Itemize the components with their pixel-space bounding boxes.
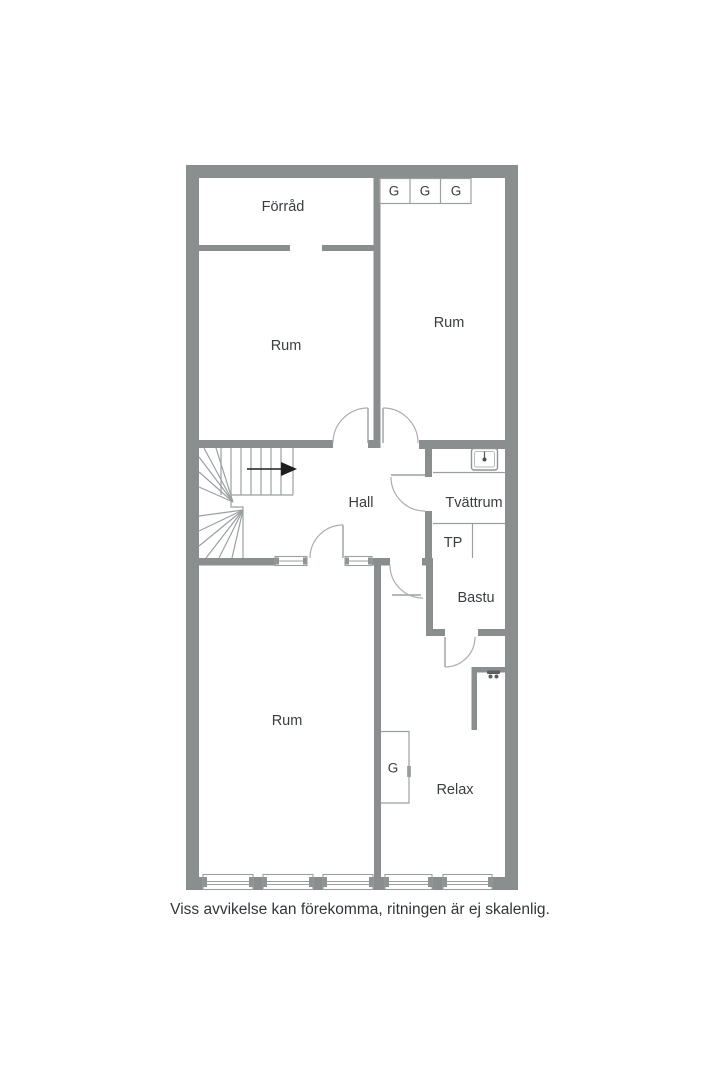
wardrobe-label-g-relax: G <box>388 761 399 775</box>
interior-window-icon <box>275 557 307 566</box>
sink-icon <box>433 449 505 473</box>
door-relax-corridor <box>390 565 423 598</box>
room-label-hall: Hall <box>349 496 374 511</box>
room-label-relax: Relax <box>436 783 473 798</box>
window-icon <box>203 875 253 890</box>
shower-mixer-icon <box>487 671 500 679</box>
disclaimer-caption: Viss avvikelse kan förekomma, ritningen … <box>170 901 550 919</box>
stairs-direction-arrow-icon <box>247 462 297 476</box>
room-label-bastu: Bastu <box>457 591 494 606</box>
wardrobe-label-g1: G <box>389 184 400 198</box>
label-tp: TP <box>444 536 463 551</box>
room-label-rum-bottom: Rum <box>272 714 303 729</box>
room-label-rum-top-left: Rum <box>271 339 302 354</box>
interior-walls <box>199 178 505 877</box>
winder-staircase-icon <box>199 448 297 558</box>
window-icon <box>443 875 492 890</box>
interior-window-icon <box>345 557 372 566</box>
room-label-rum-top-right: Rum <box>434 316 465 331</box>
door-bastu <box>445 637 475 667</box>
door-rum-bottom <box>310 525 343 558</box>
window-icon <box>323 875 373 890</box>
wardrobe-label-g3: G <box>451 184 462 198</box>
interior-windows <box>275 557 372 566</box>
window-icon <box>385 875 432 890</box>
door-rum-top-left <box>333 408 368 443</box>
room-label-forrad: Förråd <box>262 200 305 215</box>
door-rum-top-right <box>383 408 418 443</box>
room-label-tvattrum: Tvättrum <box>445 496 502 511</box>
door-tvattrum <box>391 475 425 511</box>
wardrobe-label-g2: G <box>420 184 431 198</box>
floor-plan-page: Förråd Rum Rum Hall Tvättrum TP Bastu Ru… <box>0 0 720 1080</box>
window-icon <box>263 875 313 890</box>
window-row <box>203 875 492 890</box>
